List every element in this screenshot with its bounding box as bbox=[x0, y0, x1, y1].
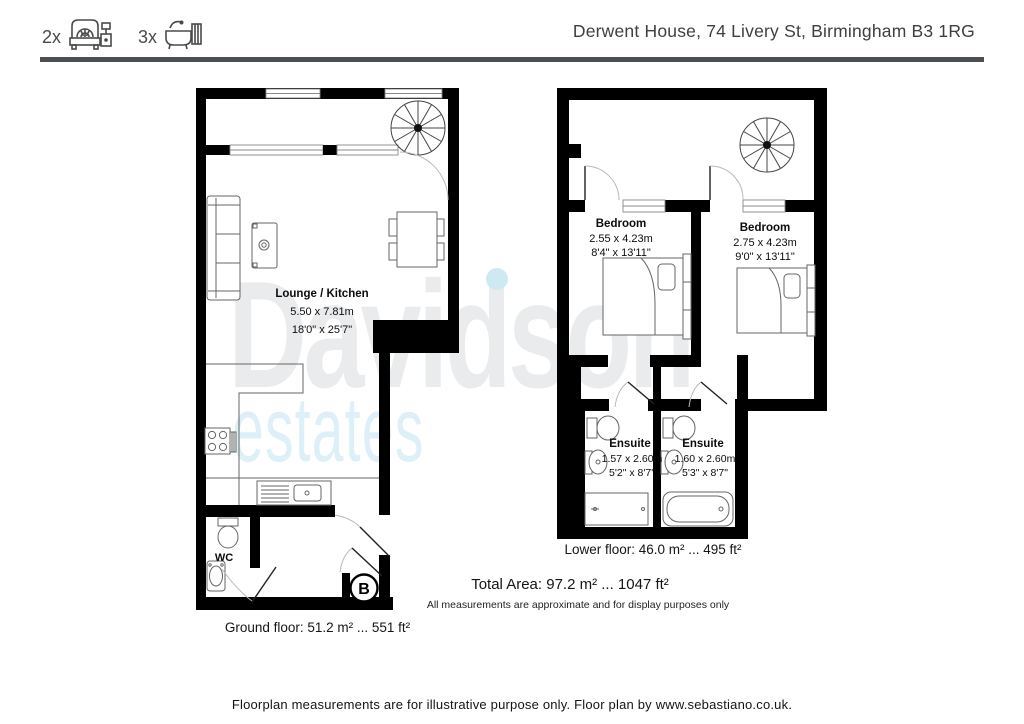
bed-count: 2x bbox=[42, 27, 61, 48]
wc-label: WC bbox=[215, 552, 233, 564]
ensuite1-imperial: 5'2" x 8'7" bbox=[609, 467, 655, 479]
property-address: Derwent House, 74 Livery St, Birmingham … bbox=[573, 21, 975, 42]
lounge-kitchen-metric: 5.50 x 7.81m bbox=[290, 306, 354, 318]
bed-icon bbox=[68, 18, 112, 57]
bedroom1-imperial: 8'4" x 13'11" bbox=[591, 247, 651, 259]
total-area-label: Total Area: 97.2 m² ... 1047 ft² bbox=[418, 576, 722, 593]
bedroom2-imperial: 9'0" x 13'11" bbox=[735, 251, 795, 263]
lounge-kitchen-name: Lounge / Kitchen bbox=[275, 288, 368, 300]
bed-2 bbox=[737, 265, 815, 336]
sofa bbox=[207, 196, 240, 300]
wc-toilet-icon bbox=[218, 518, 238, 548]
ensuite2-bathtub-icon bbox=[663, 492, 733, 526]
bedroom1-metric: 2.55 x 4.23m bbox=[589, 233, 653, 245]
ensuite2-toilet-icon bbox=[663, 416, 695, 440]
lower-floor-area-label: Lower floor: 46.0 m² ... 495 ft² bbox=[500, 542, 806, 557]
ensuite2-imperial: 5'3" x 8'7" bbox=[682, 467, 728, 479]
bed-1 bbox=[603, 254, 691, 339]
watermark-dot bbox=[486, 268, 508, 290]
ensuite2-metric: 1.60 x 2.60m bbox=[675, 453, 736, 465]
bedroom2-door bbox=[710, 166, 743, 200]
lounge-kitchen-imperial: 18'0" x 25'7" bbox=[292, 324, 352, 336]
footer-note: Floorplan measurements are for illustrat… bbox=[0, 697, 1024, 712]
floorplan-page: 2x 3x bbox=[0, 0, 1024, 724]
wc-door bbox=[222, 567, 276, 602]
ensuite2-name: Ensuite bbox=[682, 438, 724, 450]
header-counts: 2x 3x bbox=[42, 18, 204, 57]
measurement-disclaimer: All measurements are approximate and for… bbox=[406, 599, 750, 611]
bedroom2-name: Bedroom bbox=[740, 222, 790, 234]
ensuite1-shower-icon bbox=[585, 493, 648, 525]
bedroom2-metric: 2.75 x 4.23m bbox=[733, 237, 797, 249]
ensuite1-toilet-icon bbox=[587, 416, 619, 440]
spiral-stair-icon bbox=[391, 101, 445, 155]
wc-basin-icon bbox=[207, 561, 225, 591]
ensuite1-name: Ensuite bbox=[609, 438, 651, 450]
bath-count: 3x bbox=[138, 27, 157, 48]
hob-icon bbox=[205, 428, 236, 454]
spiral-stair-icon bbox=[740, 118, 794, 172]
ground-floor-area-label: Ground floor: 51.2 m² ... 551 ft² bbox=[165, 620, 470, 635]
ensuite1-metric: 1.57 x 2.60m bbox=[602, 453, 663, 465]
lower-floor-plan: Bedroom 2.55 x 4.23m 8'4" x 13'11" Bedro… bbox=[555, 88, 828, 540]
bath-icon bbox=[164, 18, 204, 57]
dining-table bbox=[389, 212, 444, 267]
entrance-door bbox=[340, 548, 382, 576]
boiler-label: B bbox=[358, 581, 370, 598]
bedroom1-door bbox=[585, 166, 619, 200]
hall-door bbox=[335, 515, 390, 557]
kitchen-sink-icon bbox=[257, 481, 331, 505]
boiler-marker: B bbox=[351, 575, 378, 602]
ground-floor-plan: B Lounge / Kitchen 5.50 x 7.81m 18'0" x … bbox=[193, 88, 463, 618]
bedroom1-name: Bedroom bbox=[596, 218, 646, 230]
coffee-table bbox=[252, 223, 277, 268]
header-divider bbox=[40, 57, 984, 62]
lounge-door-arc bbox=[400, 152, 448, 200]
